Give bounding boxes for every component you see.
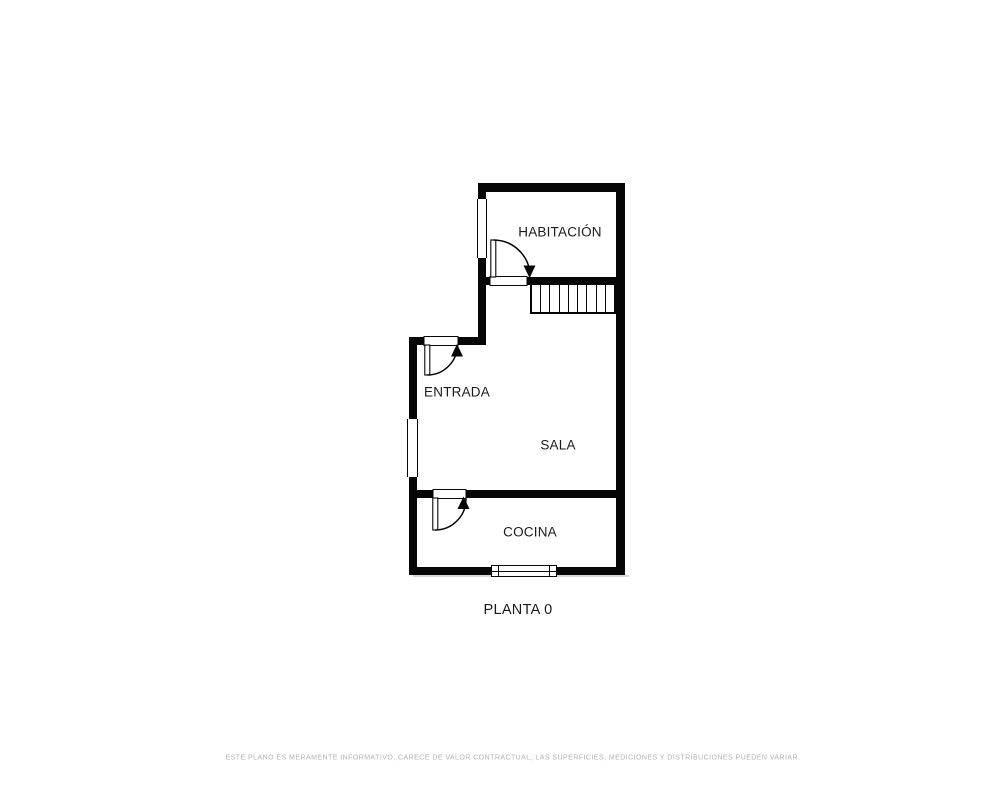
door-habitacion-threshold (490, 277, 527, 286)
room-label-entrada: ENTRADA (424, 385, 490, 400)
room-label-habitacion: HABITACIÓN (518, 225, 602, 240)
room-label-sala: SALA (540, 438, 575, 453)
door-habitacion-leaf (491, 240, 496, 277)
door-entrada-threshold (424, 337, 458, 346)
door-entrada (424, 337, 463, 376)
door-habitacion (490, 240, 536, 286)
door-entrada-arc (427, 346, 457, 376)
door-entrada-leaf (425, 345, 430, 375)
disclaimer-text: ESTE PLANO ES MERAMENTE INFORMATIVO, CAR… (226, 755, 801, 762)
floor-label: PLANTA 0 (483, 602, 552, 618)
floor-plan-canvas: HABITACIÓN ENTRADA SALA COCINA PLANTA 0 … (0, 0, 1000, 800)
door-symbols (0, 0, 1000, 800)
door-cocina-threshold (433, 490, 466, 499)
room-label-cocina: COCINA (503, 525, 557, 540)
door-cocina-leaf (433, 498, 438, 530)
door-cocina (433, 490, 470, 531)
door-habitacion-arc (494, 240, 531, 277)
